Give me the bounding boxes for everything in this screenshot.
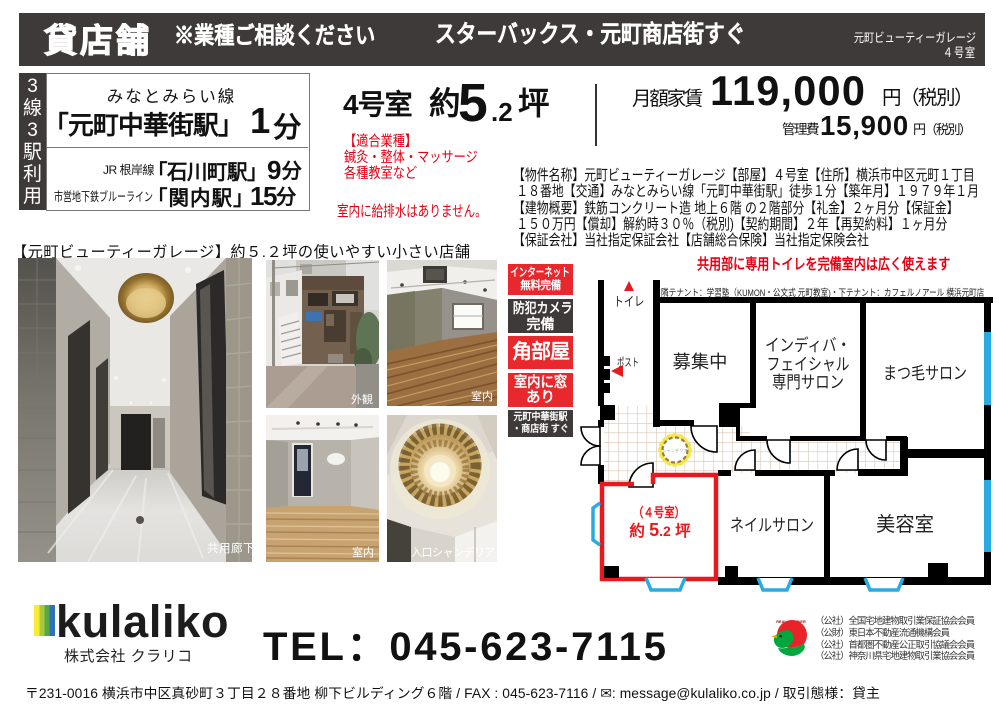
svg-text:入口シャンデリア: 入口シャンデリア (411, 545, 495, 559)
svg-text:外観: 外観 (351, 392, 373, 406)
svg-text:まつ毛サロン: まつ毛サロン (883, 364, 967, 383)
svg-text:美容室: 美容室 (876, 513, 934, 536)
svg-text:（４号室）: （４号室） (633, 505, 685, 520)
svg-text:室内: 室内 (352, 545, 374, 559)
svg-text:フェイシャル: フェイシャル (767, 355, 850, 374)
svg-text:トイレ: トイレ (614, 294, 645, 309)
svg-text:室内: 室内 (471, 389, 493, 403)
svg-text:インディバ・: インディバ・ (765, 335, 851, 355)
svg-text:約 5.2 坪: 約 5.2 坪 (629, 520, 691, 540)
svg-text:専門サロン: 専門サロン (772, 373, 844, 392)
svg-text:ネイルサロン: ネイルサロン (730, 516, 814, 535)
svg-text:募集中: 募集中 (673, 352, 728, 372)
svg-text:共用廊下: 共用廊下 (207, 541, 252, 555)
svg-text:シャンデリア: シャンデリア (662, 447, 687, 454)
